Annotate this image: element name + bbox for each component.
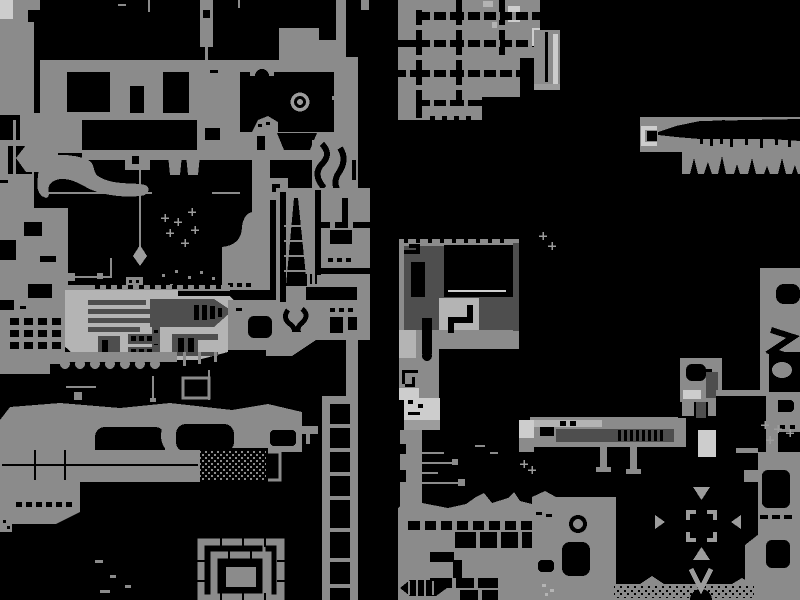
lighter-corner-room [0, 0, 13, 19]
band-bracket [641, 126, 657, 146]
spire-rooms-block [266, 188, 370, 356]
fang-right [186, 151, 200, 175]
ring-cave [240, 72, 334, 132]
black-vault [444, 245, 514, 297]
plumb-line [139, 152, 141, 247]
machine-box [680, 358, 722, 418]
world-map [0, 0, 800, 600]
fang-left [168, 151, 182, 175]
large-cave-room [82, 120, 197, 150]
cave-lobe-right [176, 424, 234, 452]
left-base-windows [0, 262, 65, 374]
stipple-rubble [198, 450, 266, 480]
map-canvas[interactable] [0, 0, 800, 600]
small-tower [532, 28, 560, 90]
